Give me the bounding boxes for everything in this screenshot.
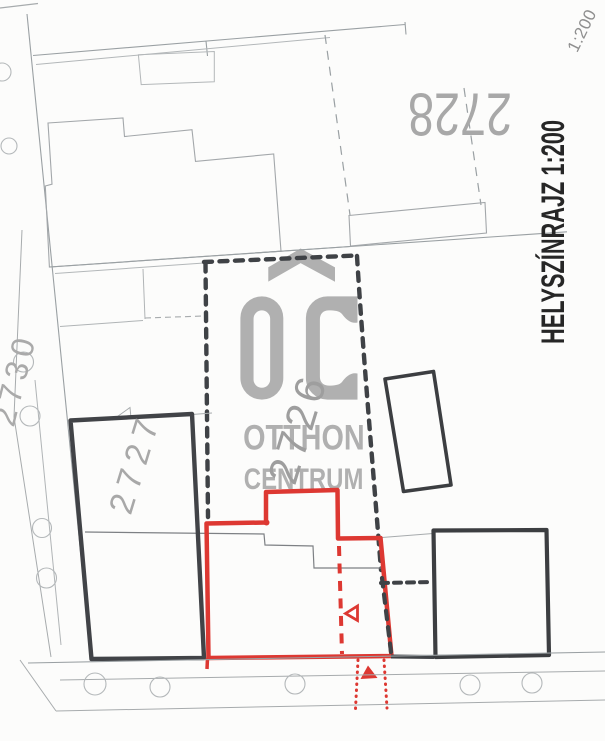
svg-text:2728: 2728 — [408, 80, 512, 147]
svg-text:HELYSZÍNRAJZ 1:200: HELYSZÍNRAJZ 1:200 — [535, 120, 571, 344]
